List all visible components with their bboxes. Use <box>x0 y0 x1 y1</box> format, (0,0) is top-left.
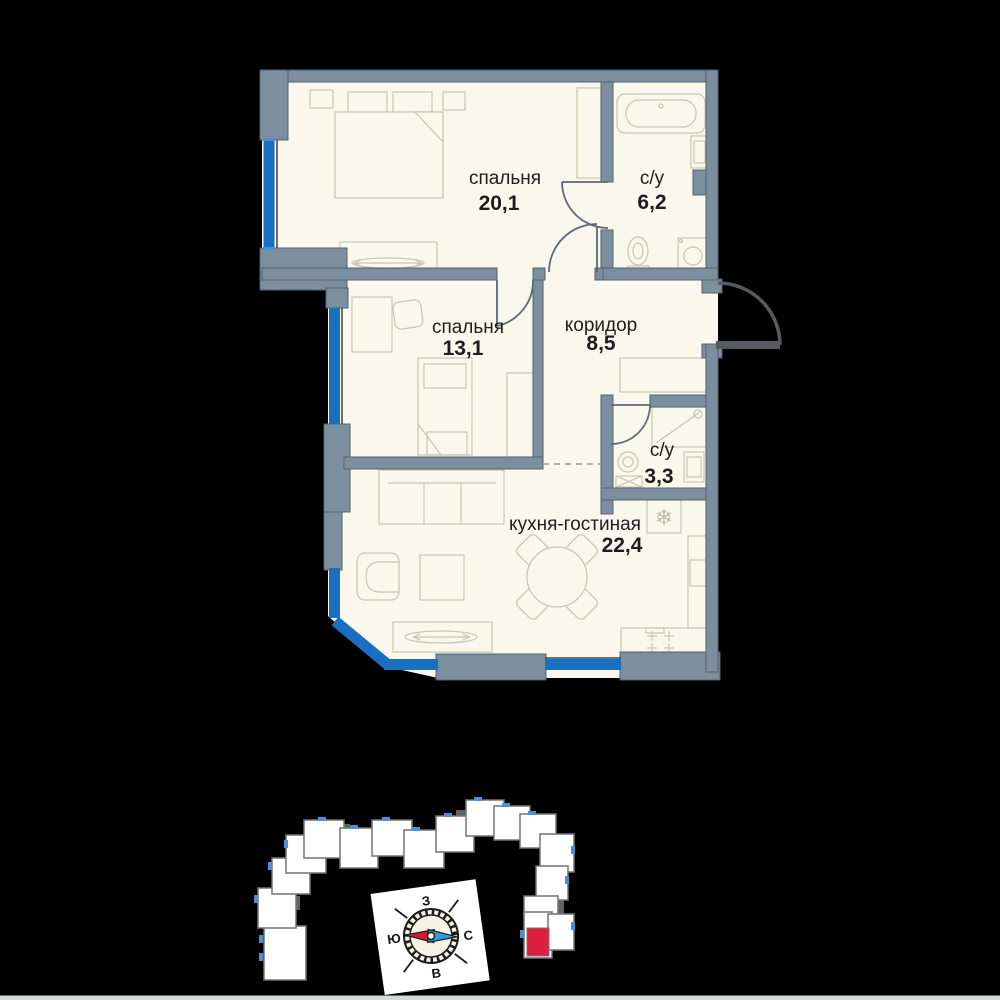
room-label-bathroom-1-name: с/у <box>640 168 665 189</box>
window-kitchen-bottom <box>545 659 621 670</box>
highlighted-unit <box>527 928 549 956</box>
room-label-kitchen-living-area: 22,4 <box>602 534 643 557</box>
room-label-bathroom-2-name: с/у <box>650 440 675 461</box>
room-label-kitchen-living-name: кухня-гостиная <box>509 514 641 535</box>
window-kitchen-bottom-left <box>384 659 438 670</box>
bottom-edge-strip <box>0 996 1000 1000</box>
floor-plan-page: ❄ <box>0 0 1000 1000</box>
room-label-bedroom-2-name: спальня <box>432 317 504 338</box>
window-kitchen-left <box>329 568 340 618</box>
window-bedroom1 <box>264 140 275 248</box>
room-label-bathroom-1-area: 6,2 <box>637 191 666 214</box>
compass: З Ю С В <box>371 879 490 995</box>
room-label-bathroom-2-area: 3,3 <box>644 465 673 488</box>
room-label-bedroom-1-name: спальня <box>469 168 541 189</box>
compass-south-label: Ю <box>386 930 401 947</box>
shaft-niche <box>693 170 707 195</box>
window-bedroom2 <box>329 308 340 424</box>
room-label-bedroom-1-area: 20,1 <box>479 192 520 215</box>
entrance-door <box>716 283 780 349</box>
room-label-corridor-area: 8,5 <box>586 332 616 355</box>
floor-plan: ❄ <box>260 70 780 680</box>
fridge-snowflake-icon: ❄ <box>655 505 673 530</box>
room-label-bedroom-2-area: 13,1 <box>443 337 484 360</box>
